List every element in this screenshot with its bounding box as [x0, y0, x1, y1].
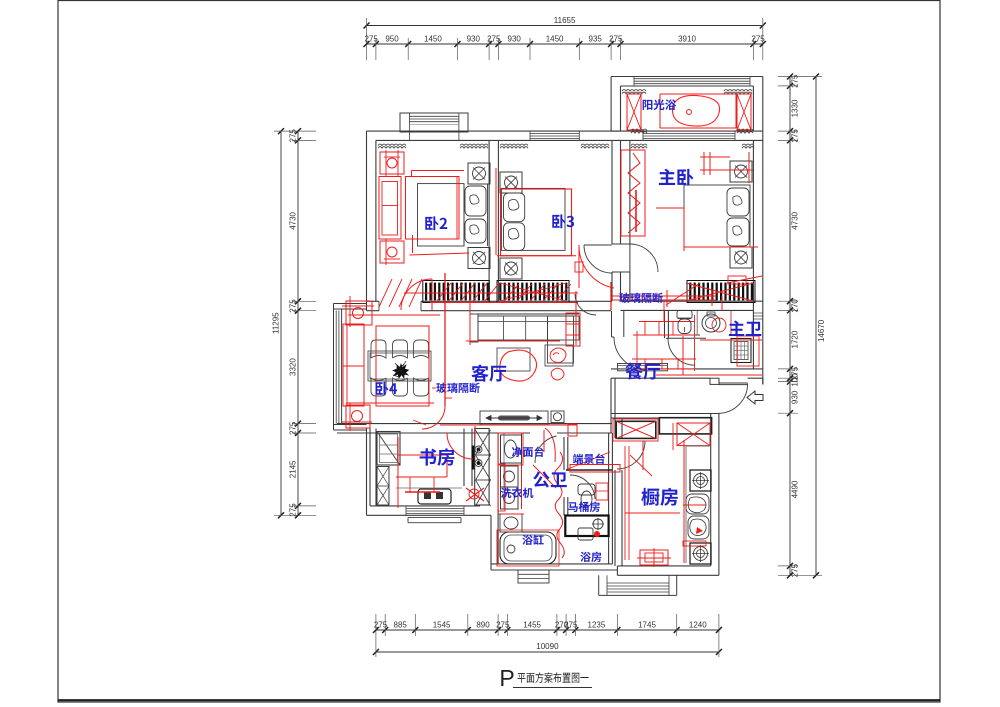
svg-text:275: 275	[374, 621, 388, 630]
svg-text:275: 275	[751, 35, 765, 44]
svg-text:275: 275	[365, 35, 379, 44]
svg-text:1455: 1455	[523, 621, 541, 630]
svg-text:930: 930	[508, 35, 522, 44]
svg-text:935: 935	[589, 35, 603, 44]
svg-text:275: 275	[487, 35, 501, 44]
svg-text:885: 885	[394, 621, 408, 630]
svg-text:930: 930	[791, 390, 800, 404]
svg-text:275: 275	[289, 503, 298, 517]
svg-text:1450: 1450	[424, 35, 442, 44]
svg-text:275: 275	[609, 35, 623, 44]
svg-text:275: 275	[289, 299, 298, 313]
svg-text:4730: 4730	[289, 211, 298, 229]
svg-text:11295: 11295	[272, 312, 281, 334]
svg-text:4490: 4490	[791, 480, 800, 498]
svg-text:275: 275	[496, 621, 510, 630]
svg-text:1545: 1545	[433, 621, 451, 630]
svg-text:3320: 3320	[289, 358, 298, 376]
svg-text:1330: 1330	[791, 99, 800, 117]
svg-text:890: 890	[476, 621, 490, 630]
svg-text:1745: 1745	[638, 621, 656, 630]
svg-text:930: 930	[467, 35, 481, 44]
svg-text:1450: 1450	[546, 35, 564, 44]
svg-text:270: 270	[791, 299, 800, 313]
svg-text:100: 100	[791, 373, 800, 387]
svg-text:275: 275	[791, 74, 800, 88]
svg-text:4730: 4730	[791, 211, 800, 229]
svg-text:P: P	[499, 665, 514, 691]
svg-text:11655: 11655	[554, 16, 576, 25]
svg-text:2145: 2145	[289, 460, 298, 478]
svg-text:3910: 3910	[678, 35, 696, 44]
svg-text:275: 275	[289, 129, 298, 143]
svg-text:1240: 1240	[689, 621, 707, 630]
svg-text:275: 275	[289, 421, 298, 435]
svg-text:950: 950	[385, 35, 399, 44]
svg-text:275: 275	[791, 129, 800, 143]
svg-text:1235: 1235	[588, 621, 606, 630]
svg-text:275: 275	[791, 563, 800, 577]
svg-text:14670: 14670	[817, 319, 826, 342]
svg-text:275: 275	[564, 621, 578, 630]
svg-text:1720: 1720	[791, 330, 800, 348]
svg-text:10090: 10090	[536, 642, 559, 651]
